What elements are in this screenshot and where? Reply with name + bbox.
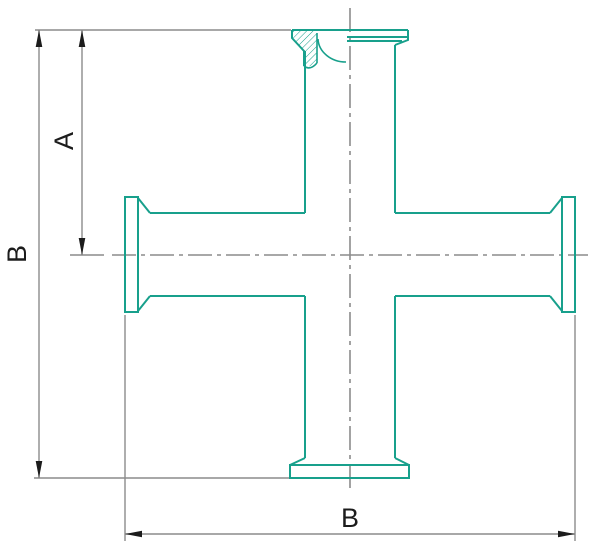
dim-b-horiz-arrow-left-icon	[125, 531, 142, 538]
dim-a-arrow-down-icon	[79, 238, 86, 255]
dim-b-horiz-arrow-right-icon	[558, 531, 575, 538]
dim-b-vert-arrow-down-icon	[36, 461, 43, 478]
dim-b-vert-arrow-up-icon	[36, 30, 43, 47]
centerlines	[112, 8, 588, 492]
dim-a-arrow-up-icon	[79, 30, 86, 47]
dim-b-vert-label: B	[2, 245, 32, 263]
cross-fitting-drawing: A B B	[0, 0, 600, 557]
engineering-drawing-canvas: A B B	[0, 0, 600, 557]
dimension-b-vertical: B	[2, 30, 291, 478]
bore-radius-arc	[318, 39, 346, 62]
dimension-a: A	[49, 30, 104, 255]
dim-b-horiz-label: B	[341, 503, 359, 533]
dim-a-label: A	[49, 132, 79, 150]
